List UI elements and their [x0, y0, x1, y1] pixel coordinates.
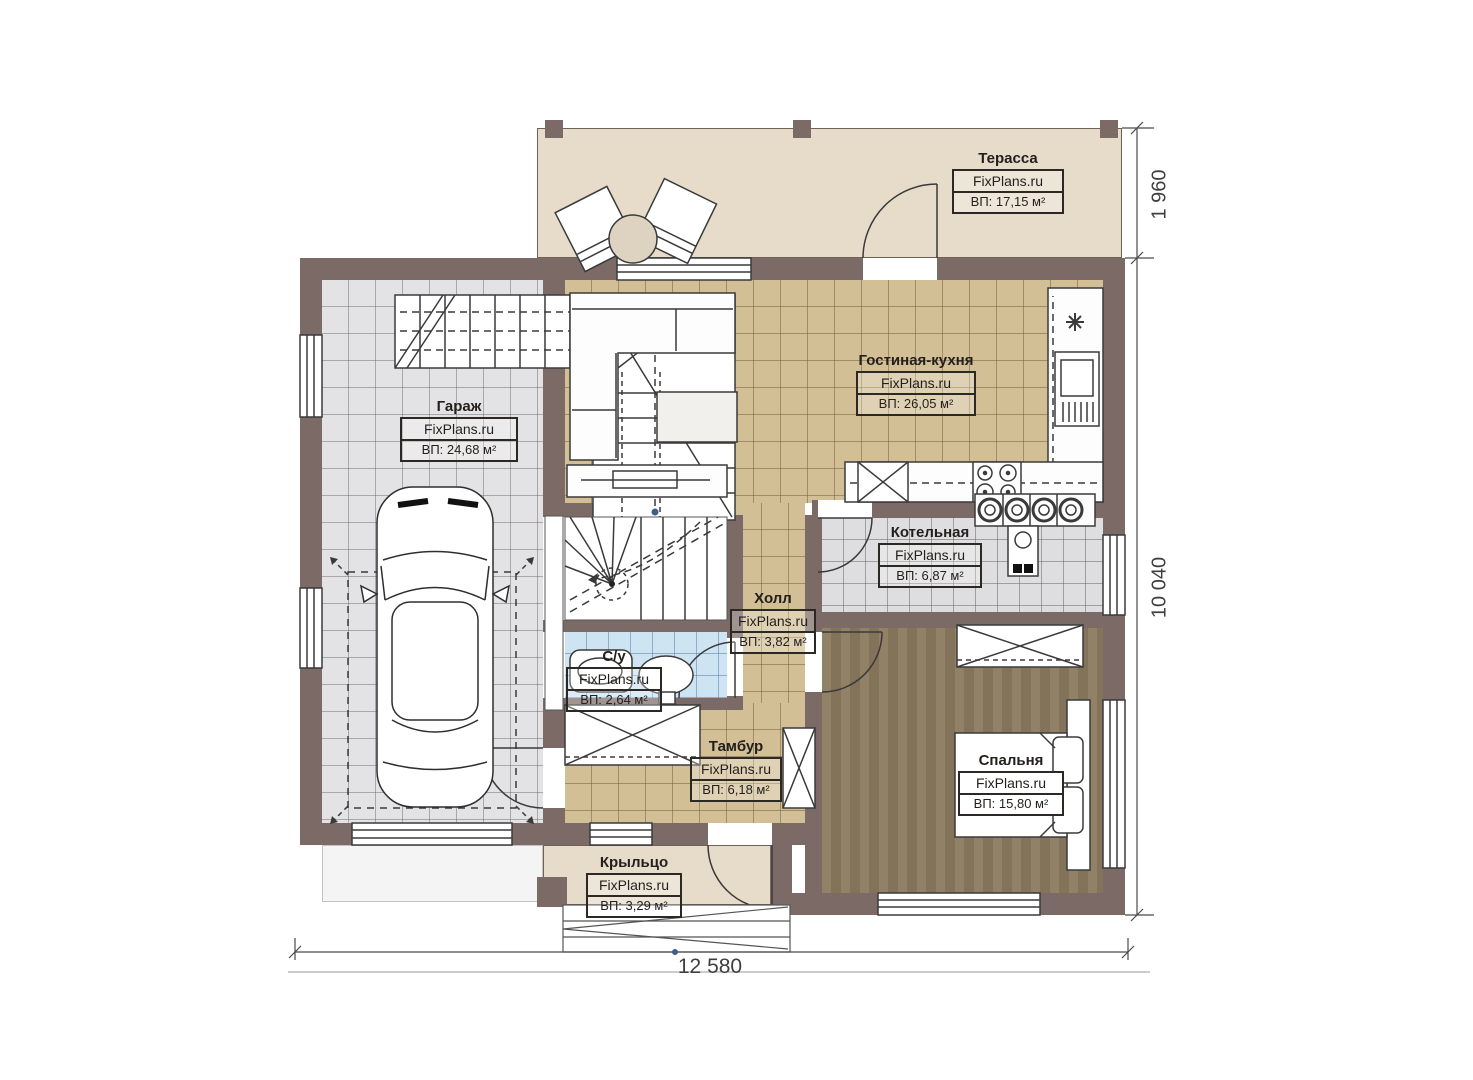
boiler-unit — [1008, 526, 1038, 576]
area-bathroom: ВП: 2,64 м² — [568, 689, 660, 710]
window-bedroom-bottom — [878, 893, 1040, 915]
room-name-garage: Гараж — [400, 398, 518, 415]
tv-stand — [567, 465, 727, 497]
watermark-living-kitchen: FixPlans.ru — [858, 373, 974, 393]
label-tambour: Тамбур FixPlans.ru ВП: 6,18 м² — [690, 738, 782, 802]
room-name-porch: Крыльцо — [586, 854, 682, 871]
watermark-porch: FixPlans.ru — [588, 875, 680, 895]
label-porch: Крыльцо FixPlans.ru ВП: 3,29 м² — [586, 854, 682, 918]
window-tambour-bottom — [590, 823, 652, 845]
dimension-terrace-depth: 1 960 — [1149, 165, 1172, 225]
bedroom-wardrobe — [957, 625, 1083, 667]
label-living-kitchen: Гостиная-кухня FixPlans.ru ВП: 26,05 м² — [856, 352, 976, 416]
terrace-table — [609, 215, 657, 263]
tambour-wardrobe — [565, 705, 700, 765]
watermark-hall: FixPlans.ru — [732, 611, 814, 631]
room-name-boiler: Котельная — [878, 524, 982, 541]
area-porch: ВП: 3,29 м² — [588, 895, 680, 916]
door-tambour-garage — [483, 748, 565, 808]
area-boiler: ВП: 6,87 м² — [880, 565, 980, 586]
room-name-living-kitchen: Гостиная-кухня — [856, 352, 976, 369]
plan-drawing-layer — [0, 0, 1473, 1080]
label-boiler: Котельная FixPlans.ru ВП: 6,87 м² — [878, 524, 982, 588]
room-name-hall: Холл — [730, 590, 816, 607]
door-front — [708, 823, 772, 909]
stairs-hall — [565, 517, 727, 620]
watermark-bedroom: FixPlans.ru — [960, 773, 1062, 793]
room-name-bedroom: Спальня — [958, 752, 1064, 769]
area-garage: ВП: 24,68 м² — [402, 439, 516, 460]
window-bedroom-right — [1103, 700, 1125, 868]
area-bedroom: ВП: 15,80 м² — [960, 793, 1062, 814]
room-name-tambour: Тамбур — [690, 738, 782, 755]
door-boiler — [818, 500, 872, 572]
floor-plan: Терасса FixPlans.ru ВП: 17,15 м² Гараж F… — [0, 0, 1473, 1080]
watermark-boiler: FixPlans.ru — [880, 545, 980, 565]
watermark-terrace: FixPlans.ru — [954, 171, 1062, 191]
area-terrace: ВП: 17,15 м² — [954, 191, 1062, 212]
dimension-house-width: 12 580 — [640, 955, 780, 979]
area-living-kitchen: ВП: 26,05 м² — [858, 393, 974, 414]
door-bedroom — [805, 632, 882, 692]
partition-garage-stairs — [545, 516, 563, 710]
label-hall: Холл FixPlans.ru ВП: 3,82 м² — [730, 590, 816, 654]
watermark-garage: FixPlans.ru — [402, 419, 516, 439]
window-boiler-right — [1103, 535, 1125, 615]
watermark-bathroom: FixPlans.ru — [568, 669, 660, 689]
oven — [1055, 352, 1099, 426]
watermark-tambour: FixPlans.ru — [692, 759, 780, 779]
garage-door — [352, 823, 512, 845]
label-bathroom: С/у FixPlans.ru ВП: 2,64 м² — [566, 648, 662, 712]
label-terrace: Терасса FixPlans.ru ВП: 17,15 м² — [952, 150, 1064, 214]
room-name-bathroom: С/у — [566, 648, 662, 665]
label-bedroom: Спальня FixPlans.ru ВП: 15,80 м² — [958, 752, 1064, 816]
dimension-house-depth: 10 040 — [1149, 555, 1172, 621]
coffee-table — [657, 392, 737, 442]
door-terrace — [863, 184, 937, 280]
area-tambour: ВП: 6,18 м² — [692, 779, 780, 800]
car — [361, 487, 509, 807]
sink-icon — [858, 462, 908, 502]
window-garage-left-2 — [300, 588, 322, 668]
area-hall: ВП: 3,82 м² — [732, 631, 814, 652]
room-name-terrace: Терасса — [952, 150, 1064, 167]
boiler-tanks — [975, 494, 1095, 526]
window-garage-left-1 — [300, 335, 322, 417]
label-garage: Гараж FixPlans.ru ВП: 24,68 м² — [400, 398, 518, 462]
tambour-cupboard — [783, 728, 815, 808]
